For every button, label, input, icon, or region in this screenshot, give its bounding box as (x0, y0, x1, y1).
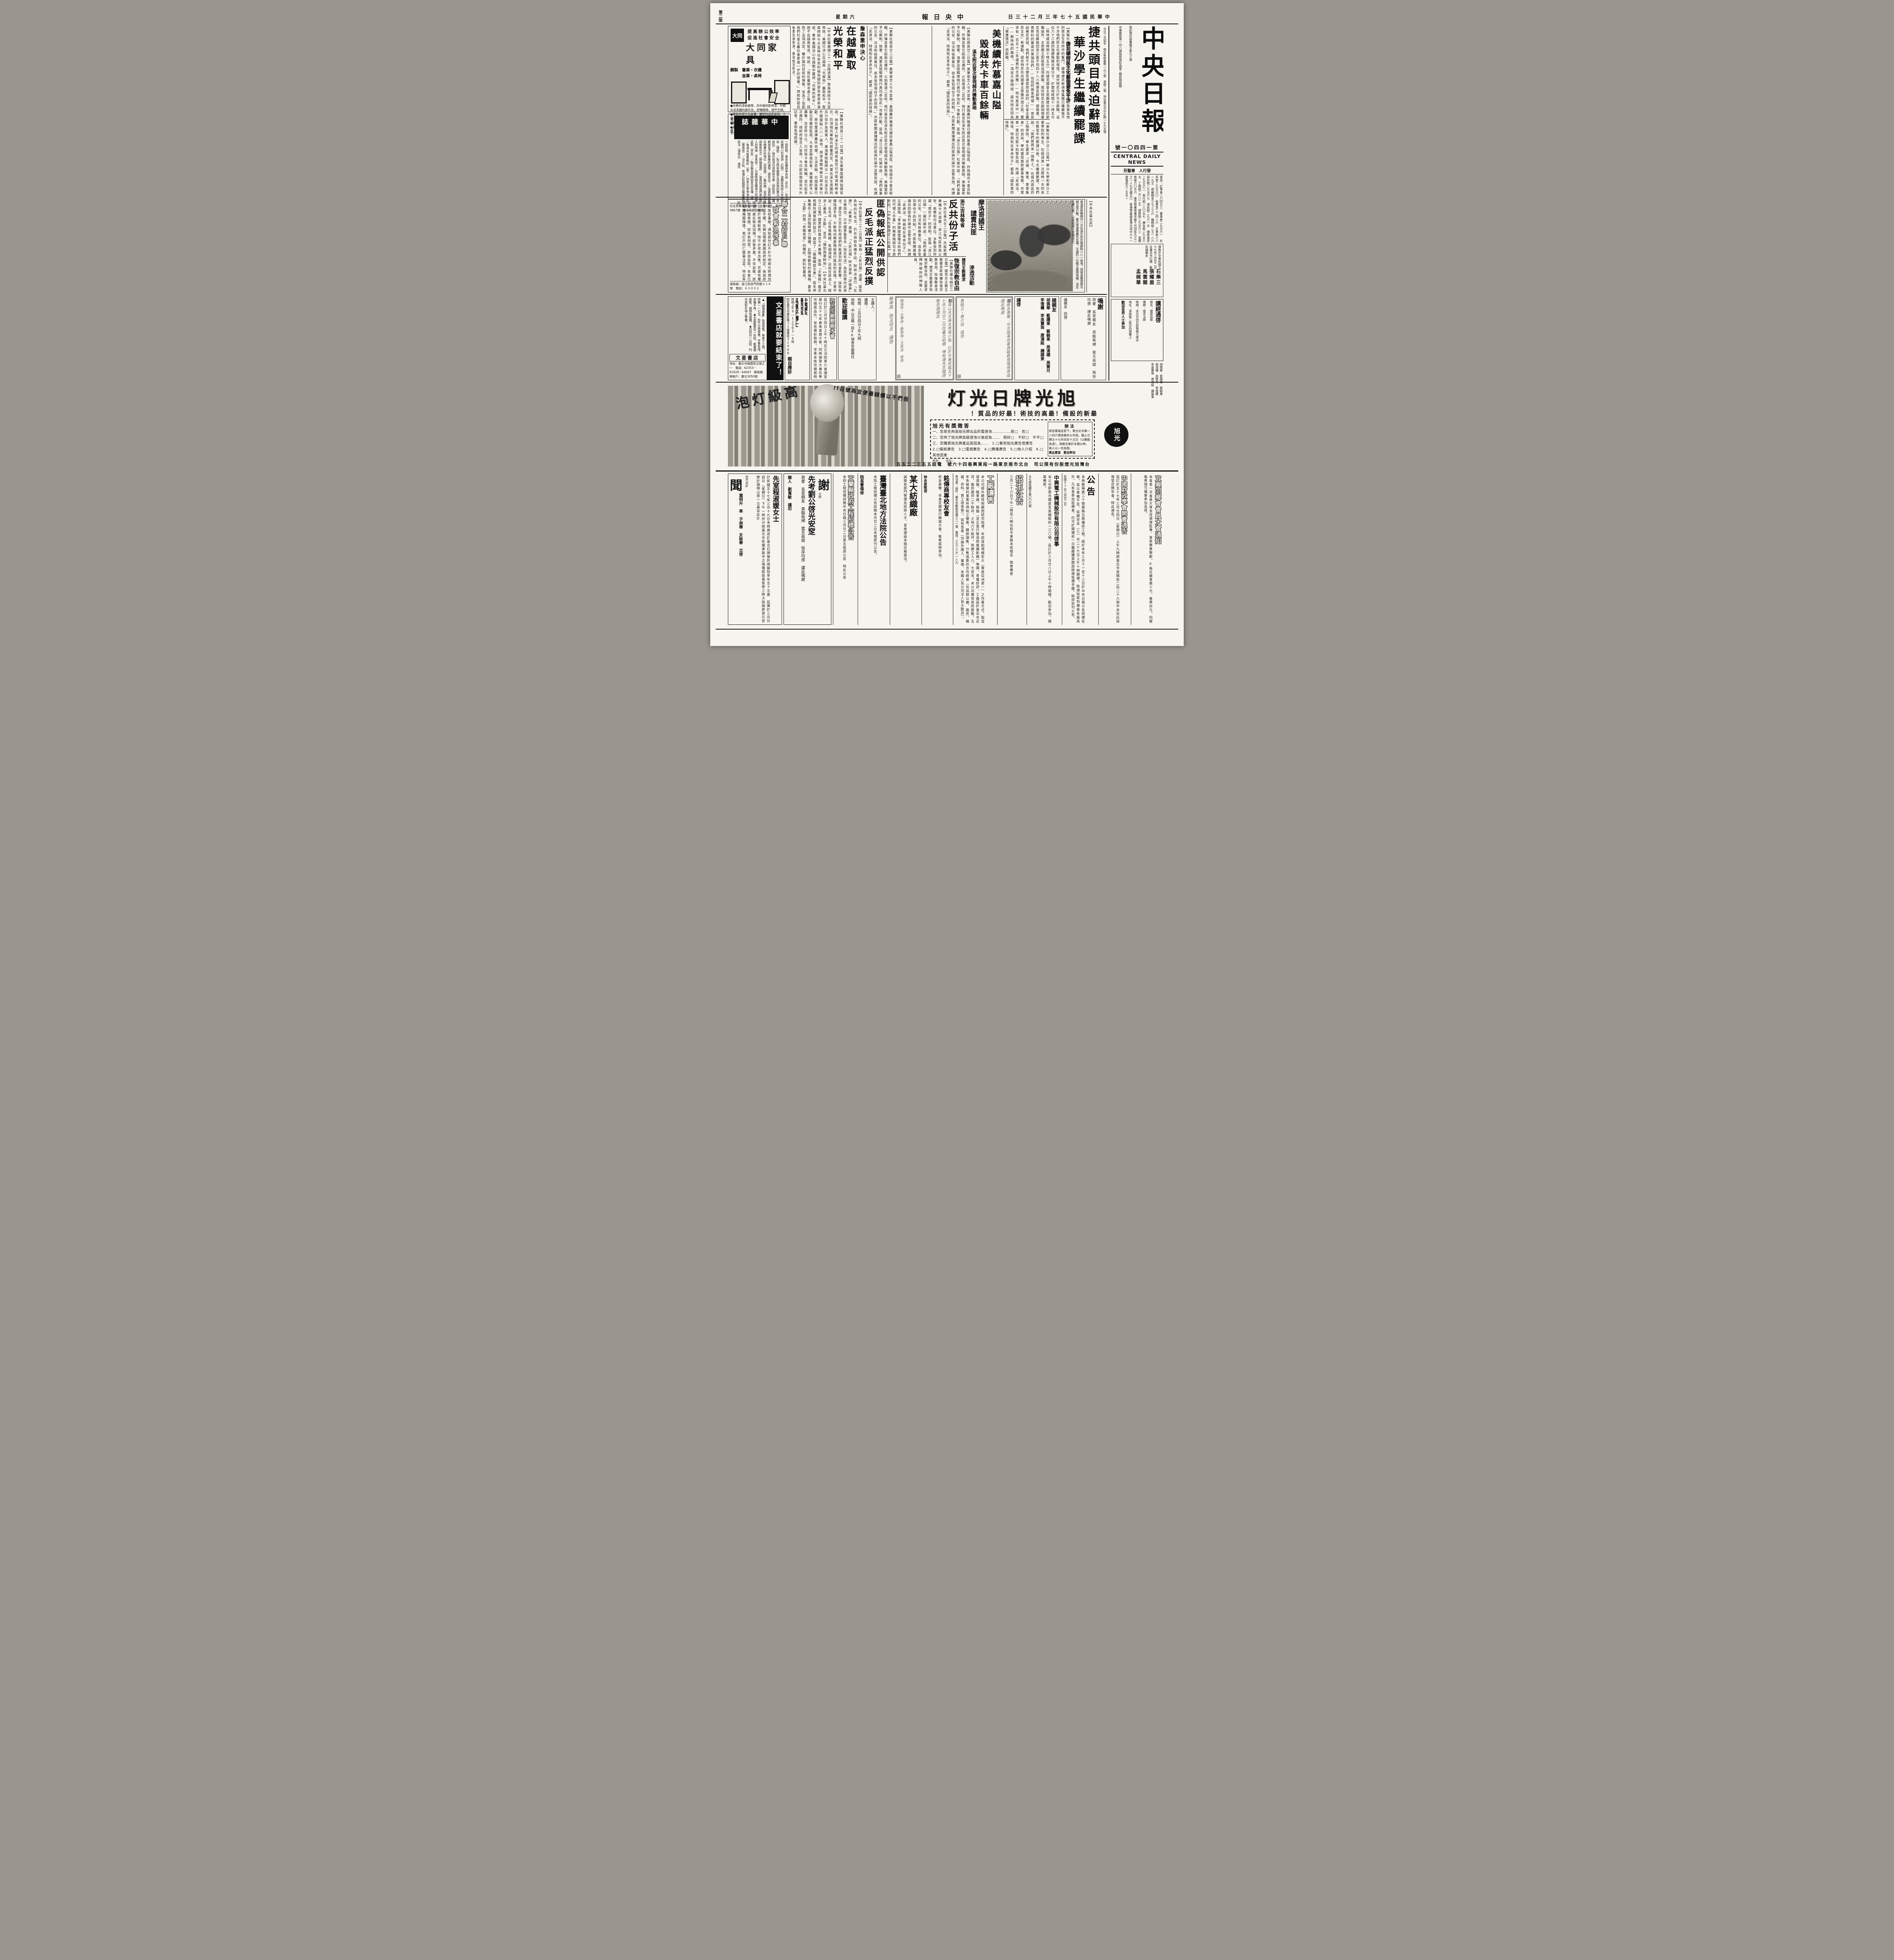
factory-contact: 商洽處：函件：臺北市郵政信箱三二一號 電話：三七二八六—八九 (954, 475, 959, 623)
court-body: 本院工程招標公告詳閱本月廿二日本報原刊公告。 (865, 475, 877, 623)
sutra-line: 講師：南亭法師 (1141, 301, 1147, 359)
mourning-body: 荷蒙 長官親友 賁臨執紼 雲天高誼 歿存均感 謹此鳴謝 (1069, 298, 1096, 379)
ad-lecture-youth-center: 主講人： 講題： 時間：三月廿四日上午九時 地點：中山北路一段46號青年服務社 … (838, 296, 876, 380)
enroll-title: 招生公告 (1014, 475, 1024, 623)
photo-halftone-image (987, 200, 1073, 291)
wenxing-closing-banner: 文星書店就要結束了！ (767, 297, 783, 380)
sutra-line: 時間：本月廿四日起每晚七時半 (1134, 301, 1139, 359)
wenxing-store-name: 文星書店 (729, 354, 766, 361)
sutra-lecture-notice: 講經通啓 經名：維摩詰經 講師：南亭法師 時間：本月廿四日起每晚七時半 地址：濟… (1111, 299, 1163, 361)
zh-issue: 三月號 本社 (730, 116, 734, 139)
thanks-names: 胡佩華 藍護東 蔡毓東 周清標 周賀月 李復穠 李吳寶珠 唐湯銘 譚謨東 (1022, 298, 1050, 379)
masthead: 中央日報 登記證內版臺報字第九三號 中華郵政第一四八號執照登記為第二類新聞紙類 … (1108, 26, 1163, 381)
yilan-body: 本府工程招標詳閱中央日報三月廿二日第五版原公告 特此公告 (834, 475, 846, 623)
anti-headline: 反共份子活躍 (947, 199, 960, 256)
news-column-misc: 【美聯社西貢廿二日電】美軍發言人今天宣佈：美國轟炸機連日續炸慕嘉山隘地區，炸毀越… (867, 26, 930, 195)
war-photo: 美海軍陸戰隊廿一日在溪生的外圍據點八八一高地，用望遠鏡偵察北越共軍行動，替空軍選… (986, 199, 1085, 292)
ad-wenxing-books: ▲「胡適選集」恢復發售，每套十三冊，特價一一七元，恕不分冊零賣，存書有限，良機不… (728, 296, 784, 380)
mourning-thanks-notice: 鳴謝 荷蒙 長官親友 賁臨執紼 雲天高誼 歿存均感 謹此鳴謝 諸親友 同啓 (1061, 296, 1106, 380)
mourning-title: 鳴謝 (1097, 298, 1105, 379)
notice-liancun: 聯合二村訂戶聯 誼會緊急啓事 聯和故技重施，通知部份訂戶於今明兩天辦理加價承諾手… (728, 199, 791, 292)
thanks-liu-big-char: 謝 (818, 475, 829, 493)
header-rule (716, 24, 1178, 24)
liancun-contact: 連絡處：晉江街金門別墅４１８號 電話：６３００２ (730, 281, 771, 290)
johnson-body-top: 【中央社華盛頓二十一日路透電】詹森總統今天宣佈說：美國已決心在越南「光榮地」贏取… (793, 26, 831, 109)
factory-body: 本公司經外籍技術顧問研究指導，年前首創規模宏大（實係亞洲第一）之作業方式，製造望… (960, 475, 985, 623)
wedding2-body: 諸親友惠鑒：兒女婚事荷蒙賁臨觀禮隆情厚誼謹此鳴謝 (965, 299, 1010, 378)
anti-kicker: 浙江吉林等省 (960, 199, 966, 256)
liancun-title-1: 聯合二村訂戶聯 (780, 201, 789, 290)
quiz-q3[interactable]: 三、您購買旭光牌產品是因為…… 1.□看到旭光廣告塔廣告 (932, 441, 1045, 447)
sutra-line: 地址：濟南路二段廿四號樓上 (1127, 301, 1132, 359)
quiz-options[interactable]: 2.□報紙廣告 3.□電視廣告 4.□廣播廣告 5.□他人介紹 6.□其他因素 (932, 447, 1045, 459)
thanks-liu-body: 荷蒙 長官親友 賁臨執紼 雲天高誼 歿存均感 謹此鳴謝 (793, 475, 805, 623)
sutra-line: 經名：維摩詰經 (1148, 301, 1154, 359)
phone-directory: 電話：訂事會二六四五三 董事會二九五六一 社長室二九五六〇 秘書室二二四八六 主… (1111, 176, 1163, 242)
price-strip: 今日二大張半 每份售新臺幣一元二角 港幣二毫 地址臺北市中正路一七九五號 (1102, 27, 1107, 157)
misc-news-body: 【美聯社西貢廿二日電】美軍發言人今天宣佈：美國轟炸機連日續炸慕嘉山隘地區，炸毀越… (867, 26, 893, 195)
court-sign: 院長曹偉修 (859, 475, 864, 623)
xu-company-line: 五五二二三五五話電 號六十四巷興東段一路東京南市北台 司公限有份股燈光旭灣台 (896, 461, 1090, 467)
johnson-body-bottom: 【美聯社西貢二十一日電】溪生美軍陸戰隊指揮官說，詢及敵人對溪生的威脅是否已可能減… (793, 109, 844, 195)
viet-headline-2: 毀越共卡車百餘輛 (977, 26, 990, 195)
notice-tender-postpone: 公告 本局衡陽路二十號建築五層樓房工程，經於本年三月十一至十三日於中央日報公告招… (1062, 474, 1097, 625)
finance-title: 中國財政學會開會通告 (1121, 475, 1128, 623)
masthead-english: CENTRAL DAILY NEWS (1111, 152, 1163, 167)
desk-icon (747, 88, 772, 90)
lead-body-2: 【美聯社華沙廿二日電】華沙大學和華沙工業學院的學生，在經過第一次歷時一天的坐在教… (1004, 119, 1050, 194)
ad-datong-furniture: 大同 提高辦公效率 促進社會安全 大同家具 鋼製 書庫・衣櫃 金庫・桌椅 ●完善… (728, 26, 791, 112)
datong-products-2: 金庫・桌椅 (742, 73, 788, 78)
masthead-reg-2: 中華郵政第一四八號執照登記為第二類新聞紙類 (1112, 26, 1123, 136)
mingchuan-sign: 林永泉敬啓 (923, 475, 928, 623)
story-morocco: 摩洛哥國王 譴責共匪 滲透活動 (967, 199, 985, 292)
textile-body: 誠徵各部門管理及技術人才，意者請函本報信箱面洽。 (891, 475, 907, 623)
xu-slogan: ！質品的好最！術技的高最！備設的新最 (971, 409, 1098, 417)
wardrobe-icon (774, 80, 790, 104)
xu-quiz-box: 旭光有獎徵答 一、您是否用過旭光牌出品的電燈泡……………是□ 否□ 二、您用了旭… (930, 419, 1095, 459)
issue-number: 號一〇四四一第 (1111, 143, 1163, 151)
notice-taipei-court: 臺灣臺北地方法院公告 本院工程招標公告詳閱本月廿二日本報原刊公告。 院長曹偉修 (858, 474, 888, 625)
lec-place: 地點：中山北路一段46號青年服務社 (849, 298, 855, 379)
church-kicker: 捷克主教要求 (960, 258, 966, 292)
story-us-planes: 美機續炸慕嘉山隘 毀越共卡車百餘輛 溪生附近首次發現越共機動高砲 【美聯社西貢廿… (932, 26, 1002, 195)
notice-finance-society: 中國財政學會開會通告 茲訂於五十七年三月廿四日（星期日）上午九時假臺北市貴陽街二… (1098, 474, 1129, 625)
viet-headline-1: 美機續炸慕嘉山隘 (990, 26, 1002, 195)
desk-leg (748, 90, 750, 100)
johnson-headline-2: 光榮和平 (831, 26, 844, 109)
zh-item: 香港共匪暴動記（客） (746, 143, 749, 174)
wedding1-sign: 翰瑞牧・左學修・鄭擎城・王家浚 敬啓 (898, 299, 904, 378)
xu-brand-title: 灯光日牌光旭 (947, 384, 1079, 410)
ad-zhonghua-magazine: 三月號 本社 誌雜華中 一個對照：黃金投機與爭自由（本社）／從小張伯倫到小甘迺迪… (728, 114, 791, 199)
band-rule-2 (716, 294, 1107, 295)
engagement-notice: 謹詹於中華民國五十七年三月廿二日在臺北市訂婚 敬告諸親友 石樂三 張耀眉 馬雲閣… (1111, 244, 1163, 297)
masthead-reg-1: 登記證內版臺報字第九三號 (1123, 26, 1133, 136)
liancun-title-2: 誼會緊急啓事 (771, 201, 780, 290)
mourning-sign: 諸親友 同啓 (1062, 298, 1068, 379)
sutra-welcome: 歡迎各界人士參加 (1119, 301, 1125, 359)
ad-xuguang-lamps: 泡灯級高 !!召號為宜便最錢價以不們我 灯光日牌光旭 ！質品的好最！術技的高最！… (728, 383, 1163, 469)
story-anticommunist: 浙江吉林等省 反共份子活躍 【中央社臺北廿二日電】共匪新聞廣播今天透露：浙江地區… (887, 199, 966, 292)
thanks-liu-kicker: 日昨 (818, 493, 822, 508)
thanks-title: 諸親友 (1051, 298, 1058, 379)
acu-line1: 中國鍼灸 (805, 298, 808, 379)
engagement-names: 石樂三 張耀眉 馬雲閣 孟婉華 (1112, 269, 1162, 292)
wedding-announcement-2: 囍 囍 諸親友惠鑒：兒女婚事荷蒙賁臨觀禮隆情厚誼謹此鳴謝 賈翹立・蔡介成 謹啓 (956, 296, 1013, 380)
johnson-headline-1: 在越贏取 (844, 26, 858, 109)
notice-yilan-gov: 宜蘭縣政府工程招標公告 本府工程招標詳閱中央日報三月廿二日第五版原公告 特此公告 (833, 474, 856, 625)
obituary-title: 先室程淑媛女士 (771, 475, 780, 623)
datong-logo-icon: 大同 (731, 29, 744, 42)
lead-subhead: 捷共標榜民主化蘇俄避免干涉 (1065, 26, 1072, 195)
lead-headline-2: 華沙學生繼續罷課 (1072, 26, 1087, 195)
court-title: 臺灣臺北地方法院公告 (878, 475, 887, 623)
datong-slogan-1: 提高辦公效率 (747, 28, 788, 34)
lead-body-1: 【美聯社布拉格廿二日電】捷克總統諾伏特尼已放棄為他的政治生命所作的奮鬥，據傳捷共… (1004, 26, 1070, 119)
church-headline: 恢復宗教自由 (953, 258, 960, 292)
yilan-title: 宜蘭縣政府工程招標公告 (847, 475, 855, 623)
furniture-illustration (730, 79, 788, 103)
enroll-body: 三月二十六日下午二時至八時在和平東路本校報名 簡章備索 (998, 475, 1013, 623)
factory-title: 工廠讓售 (985, 475, 995, 623)
datong-slogan-2: 促進社會安全 (747, 34, 788, 41)
redsplit-headline-1: 匪偽報紙公開供認 (874, 199, 886, 292)
zhongxing-ref: 五七興陸購字第〇〇六號 (1028, 475, 1032, 623)
lec-speaker: 主講人： (869, 298, 875, 379)
story-johnson: 詹森重申決心 在越贏取 光榮和平 【中央社華盛頓二十一日路透電】詹森總統今天宣佈… (793, 26, 865, 195)
morocco-headline-1: 摩洛哥國王 (978, 199, 985, 292)
redsplit-body: 【中央社臺北二十二日電】匪偽「人民日報」透露：匪區各地的反毛派，仍在採取各種手段… (793, 199, 862, 292)
obituary-big-char: 聞 (730, 475, 743, 494)
xuguang-logo-text: 旭光 (1112, 428, 1121, 442)
mingchuan-title: 銘傳商專校友會 (943, 475, 951, 623)
lead-headline-1: 捷共頭目被迫辭職 (1087, 26, 1101, 195)
acu-line2: 醫院院長 (801, 298, 804, 379)
quiz-title: 旭光有獎徵答 (932, 422, 1045, 429)
anti-body: 【中央社臺北廿二日電】共匪新聞廣播今天透露：浙江地區匪偽公安、檢察和司法單位，多… (888, 199, 947, 256)
wedding1-body: 彭青山先生長女秀英小姐 訂於中華民國五十七年三月廿二日在臺北結婚 傅有灌先生福證… (905, 299, 952, 378)
safe-icon (731, 82, 747, 103)
handwritten-thanks: 蘇孝英 張玉培五 謹啓 (878, 296, 894, 380)
notice-yixing-association: 宜興同鄉會會員大會通知 本會第一次會員大會並改選理監事，會後聚餐聯歡。②每位繳會… (1131, 474, 1163, 625)
notice-enrollment: 招生公告 三月二十六日下午二時至八時在和平東路本校報名 簡章備索 (997, 474, 1025, 625)
church-body: 【美聯社維也納廿二日電】捷克天主教主教要求新政權恢復宗教自由，恢復教會活動。捷克… (888, 258, 953, 292)
page-number: 第二版 (717, 10, 723, 34)
zh-item: 復社與清代思想與文學（胡秋原） (772, 152, 775, 196)
viet-body: 【美聯社西貢廿二日電】美軍發言人今天宣佈：美國轟炸機連日續炸慕嘉山隘地區，炸毀越… (932, 26, 971, 195)
datong-products-1: 鋼製 書庫・衣櫃 (730, 67, 788, 73)
paper-name-small: 報日央中 (922, 12, 969, 21)
obituary-note: 恕不另訃 (744, 475, 749, 623)
datong-bullet-1: ●完善的漆前處理，赤外線烘乾烤漆，外觀永呈美麗的銀灰色，舒暢眼睛，絕不生銹。 (730, 103, 788, 112)
lec-welcome: 歡迎聽講 (840, 298, 848, 379)
notice-zhongxing-electric: 中興電工機械股份有限公司啓事 本公司即需光鐵皮及黑鐵板約一三〇噸，茲訂於三月廿八… (1027, 474, 1060, 625)
finance-body: 茲訂於五十七年三月廿四日（星期日）上午九時假臺北市貴陽街二段二十六號中央信託局禮… (1099, 475, 1119, 623)
tender-title: 公告 (1086, 475, 1096, 623)
thanks-sign: 謹啓 (1016, 298, 1021, 379)
yixing-body: 本會第一次會員大會並改選理監事，會後聚餐聯歡。②每位繳會費十元、餐費卅元。同鄉敬… (1132, 475, 1153, 623)
wenxing-address: 地址：臺北市峨眉街五號之一 電話：62353・61928・64047 郵政劃撥帳… (729, 361, 766, 379)
lec-time: 時間：三月廿四日上午九時 (856, 298, 862, 379)
wushi-title: 武氏宗親懇親大會 (828, 298, 835, 379)
engagement-body: 謹詹於中華民國五十七年三月廿二日在臺北市訂婚 敬告諸親友 (1112, 245, 1162, 269)
notice-factory-sale: 工廠讓售 本公司經外籍技術顧問研究指導，年前首創規模宏大（實係亞洲第一）之作業方… (953, 474, 996, 625)
obituary-sign: 葉明升 率 子昶華 女詠華 泣啓 (730, 494, 743, 623)
classified-row: 先室程淑媛女士 於民國五十七年三月十九日未時病逝於臺北石牌榮民總醫院享年五十五歲… (728, 474, 1163, 625)
tender-body: 本局衡陽路二十號建築五層樓房工程，經於本年三月十一至十三日於中央日報公告招標在案… (1068, 475, 1085, 623)
morocco-headline-3: 滲透活動 (967, 265, 975, 292)
sutra-title: 講經通啓 (1155, 301, 1162, 359)
thanks-liu-title: 先考劉公啓光安窆 (806, 475, 816, 623)
wenxing-bullets: ▲「胡適選集」恢復發售，每套十三冊，特價一一七元，恕不分冊零賣，存書有限，良機不… (729, 298, 766, 354)
lead-headlines: 捷共頭目被迫辭職 華沙學生繼續罷課 捷共標榜民主化蘇俄避免干涉 (1065, 26, 1101, 195)
wushi-body: 茲訂於三月廿四日上午十時在立法院第六會議室舉行五十七年春季會員大會，同時頒發大專… (813, 298, 827, 379)
news-column-thin: 【中央社臺北訊】 (1087, 199, 1106, 292)
johnson-kicker: 詹森重申決心 (858, 26, 865, 109)
liancun-body: 聯和故技重施，通知部份訂戶於今明兩天辦理加價承諾手續。先稱加價經美國政府核定，後… (730, 201, 771, 281)
acu-line3: 親自應診 (786, 357, 793, 379)
footer-rule (716, 629, 1178, 630)
publisher-line: 芬聖曾 人行發 (1111, 167, 1163, 174)
ad-wushi-clan: 武氏宗親懇親大會 茲訂於三月廿四日上午十時在立法院第六會議室舉行五十七年春季會員… (811, 296, 837, 380)
redsplit-headline-2: 反毛派正猛烈反撲 (862, 199, 874, 292)
notice-mingchuan-alumni: 銘傳商專校友會 校友惠鑒：本會定期舉行聯誼大會，敬希屆時參加。 林永泉敬啓 (922, 474, 952, 625)
mingchuan-body: 校友惠鑒：本會定期舉行聯誼大會，敬希屆時參加。 (929, 475, 942, 623)
tender-date: 民國57年三月廿二日 (1063, 475, 1067, 623)
lec-topic: 講題： (863, 298, 868, 379)
masthead-title: 中央日報 (1133, 26, 1163, 143)
quiz-how-body: 將答案填妥剪下，寄台北市第一八四六號信箱本公司收。截止日期五十七年四月十五日（以… (1049, 429, 1091, 450)
band-rule-4 (716, 470, 1178, 472)
thanks-liu-sign: 棘人 劉寬敏 謹叩 (786, 475, 792, 623)
lead-story-body: 【美聯社布拉格廿二日電】捷克總統諾伏特尼已放棄為他的政治生命所作的奮鬥，據傳捷共… (1003, 26, 1064, 195)
yixing-title: 宜興同鄉會會員大會通知 (1154, 475, 1162, 623)
datong-brand: 大同家具 (746, 41, 788, 66)
date-line: 日三十二月三年七十五國民華中 (1008, 13, 1112, 20)
photo-caption: 美海軍陸戰隊廿一日在溪生的外圍據點八八一高地，用望遠鏡偵察北越共軍行動，替空軍選… (1073, 200, 1084, 291)
quiz-how-title: 辦法 (1049, 423, 1091, 429)
zh-item: 聯合報為美國姑息派宣傳（盧） (750, 161, 754, 202)
xuguang-logo: 旭光 (1104, 423, 1128, 447)
band-rule-1 (716, 197, 1107, 198)
viet-subhead: 溪生附近首次發現越共機動高砲 (971, 26, 977, 195)
quiz-q2[interactable]: 二、您用了旭光牌高級燈泡以後認為…… 很好□ 不好□ 平平□ (932, 435, 1045, 441)
textile-title: 某大紡織廠 (908, 475, 919, 623)
story-redsplit: 匪偽報紙公開供認 反毛派正猛烈反撲 【中央社臺北二十二日電】匪偽「人民日報」透露… (793, 199, 886, 292)
zh-title: 誌雜華中 (734, 116, 789, 139)
zhongxing-body: 本公司即需光鐵皮及黑鐵板約一三〇噸，茲訂於三月廿八日上午十時開標，歡迎參加，標單… (1033, 475, 1052, 623)
quiz-q1[interactable]: 一、您是否用過旭光牌出品的電燈泡……………是□ 否□ (932, 429, 1045, 435)
quiz-prize: 獎品豐富 歡迎參加 (1049, 450, 1091, 455)
ad-acupuncture-clinic: 中國鍼灸 醫院院長 吳惠平博士 時間上午9—12下午3—6時 院址臺北市康定路3… (785, 296, 810, 380)
wedding2-sign: 賈翹立・蔡介成 謹啓 (958, 299, 964, 378)
acu-doctor-name: 吳惠平博士 (796, 298, 800, 379)
zh-contents: 一個對照：黃金投機與爭自由（本社）／從小張伯倫到小甘迺迪（石明）／波蘭民族詩人米… (730, 140, 789, 202)
thanks-liu: 謝 日昨 先考劉公啓光安窆 荷蒙 長官親友 賁臨執紼 雲天高誼 歿存均感 謹此鳴… (784, 474, 831, 625)
wedding-announcement-1: 囍 囍 彭青山先生長女秀英小姐 訂於中華民國五十七年三月廿二日在臺北結婚 傅有灌… (895, 296, 954, 380)
thin-column-body: 【中央社臺北訊】 (1088, 199, 1093, 292)
weekday: 星期六 (836, 13, 857, 20)
obituary-cheng-shuyuan: 先室程淑媛女士 於民國五十七年三月十九日未時病逝於臺北石牌榮民總醫院享年五十五歲… (728, 474, 782, 625)
obituary-body: 於民國五十七年三月十九日未時病逝於臺北石牌榮民總醫院享年五十五歲 茲擇於三月廿四… (750, 475, 770, 623)
zhongxing-title: 中興電工機械股份有限公司啓事 (1052, 475, 1059, 623)
notice-textile-mill: 某大紡織廠 誠徵各部門管理及技術人才，意者請函本報信箱面洽。 (890, 474, 920, 625)
zh-item: 一個對照：黃金投機與爭自由（本社） (785, 140, 788, 191)
thanks-name-list: 諸親友 胡佩華 藍護東 蔡毓東 周清標 周賀月 李復穠 李吳寶珠 唐湯銘 譚謨東… (1014, 296, 1059, 380)
newspaper-page: 第二版 星期六 報日央中 日三十二月三年七十五國民華中 大同 提高辦公效率 促進… (710, 3, 1184, 646)
